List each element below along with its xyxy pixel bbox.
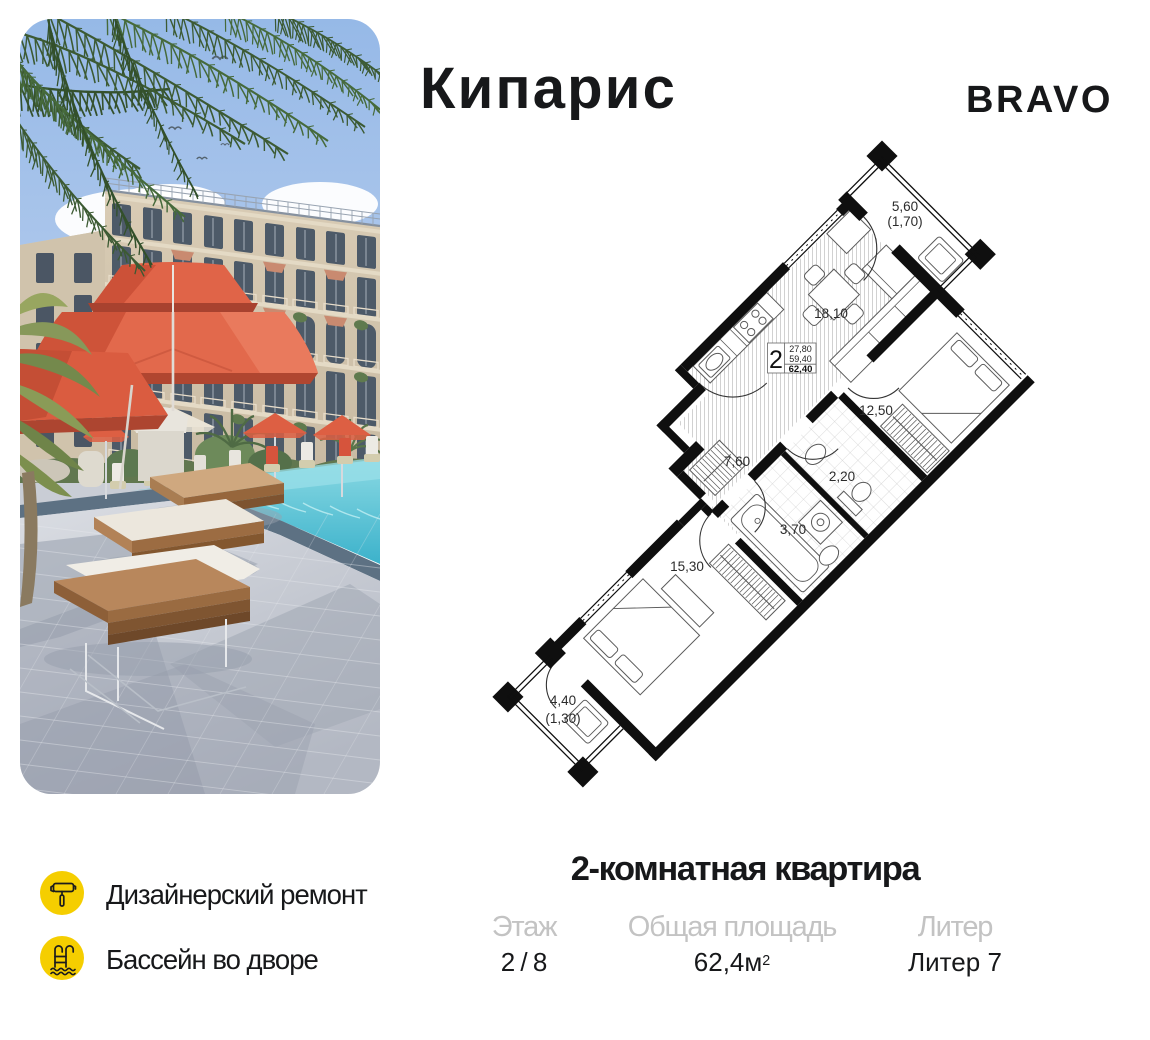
svg-text:4,40: 4,40 (550, 693, 576, 708)
svg-text:59,40: 59,40 (789, 354, 812, 364)
svg-text:62,40: 62,40 (789, 364, 813, 375)
svg-text:2: 2 (769, 346, 783, 374)
svg-text:15,30: 15,30 (670, 559, 704, 574)
svg-text:2,20: 2,20 (829, 469, 855, 484)
svg-text:(1,70): (1,70) (887, 214, 922, 229)
svg-text:3,70: 3,70 (780, 522, 806, 537)
svg-text:(1,30): (1,30) (545, 711, 580, 726)
svg-text:18,10: 18,10 (814, 306, 848, 321)
svg-text:7,60: 7,60 (724, 454, 750, 469)
svg-text:5,60: 5,60 (892, 199, 918, 214)
svg-text:27,80: 27,80 (789, 344, 812, 354)
svg-text:12,50: 12,50 (859, 403, 893, 418)
